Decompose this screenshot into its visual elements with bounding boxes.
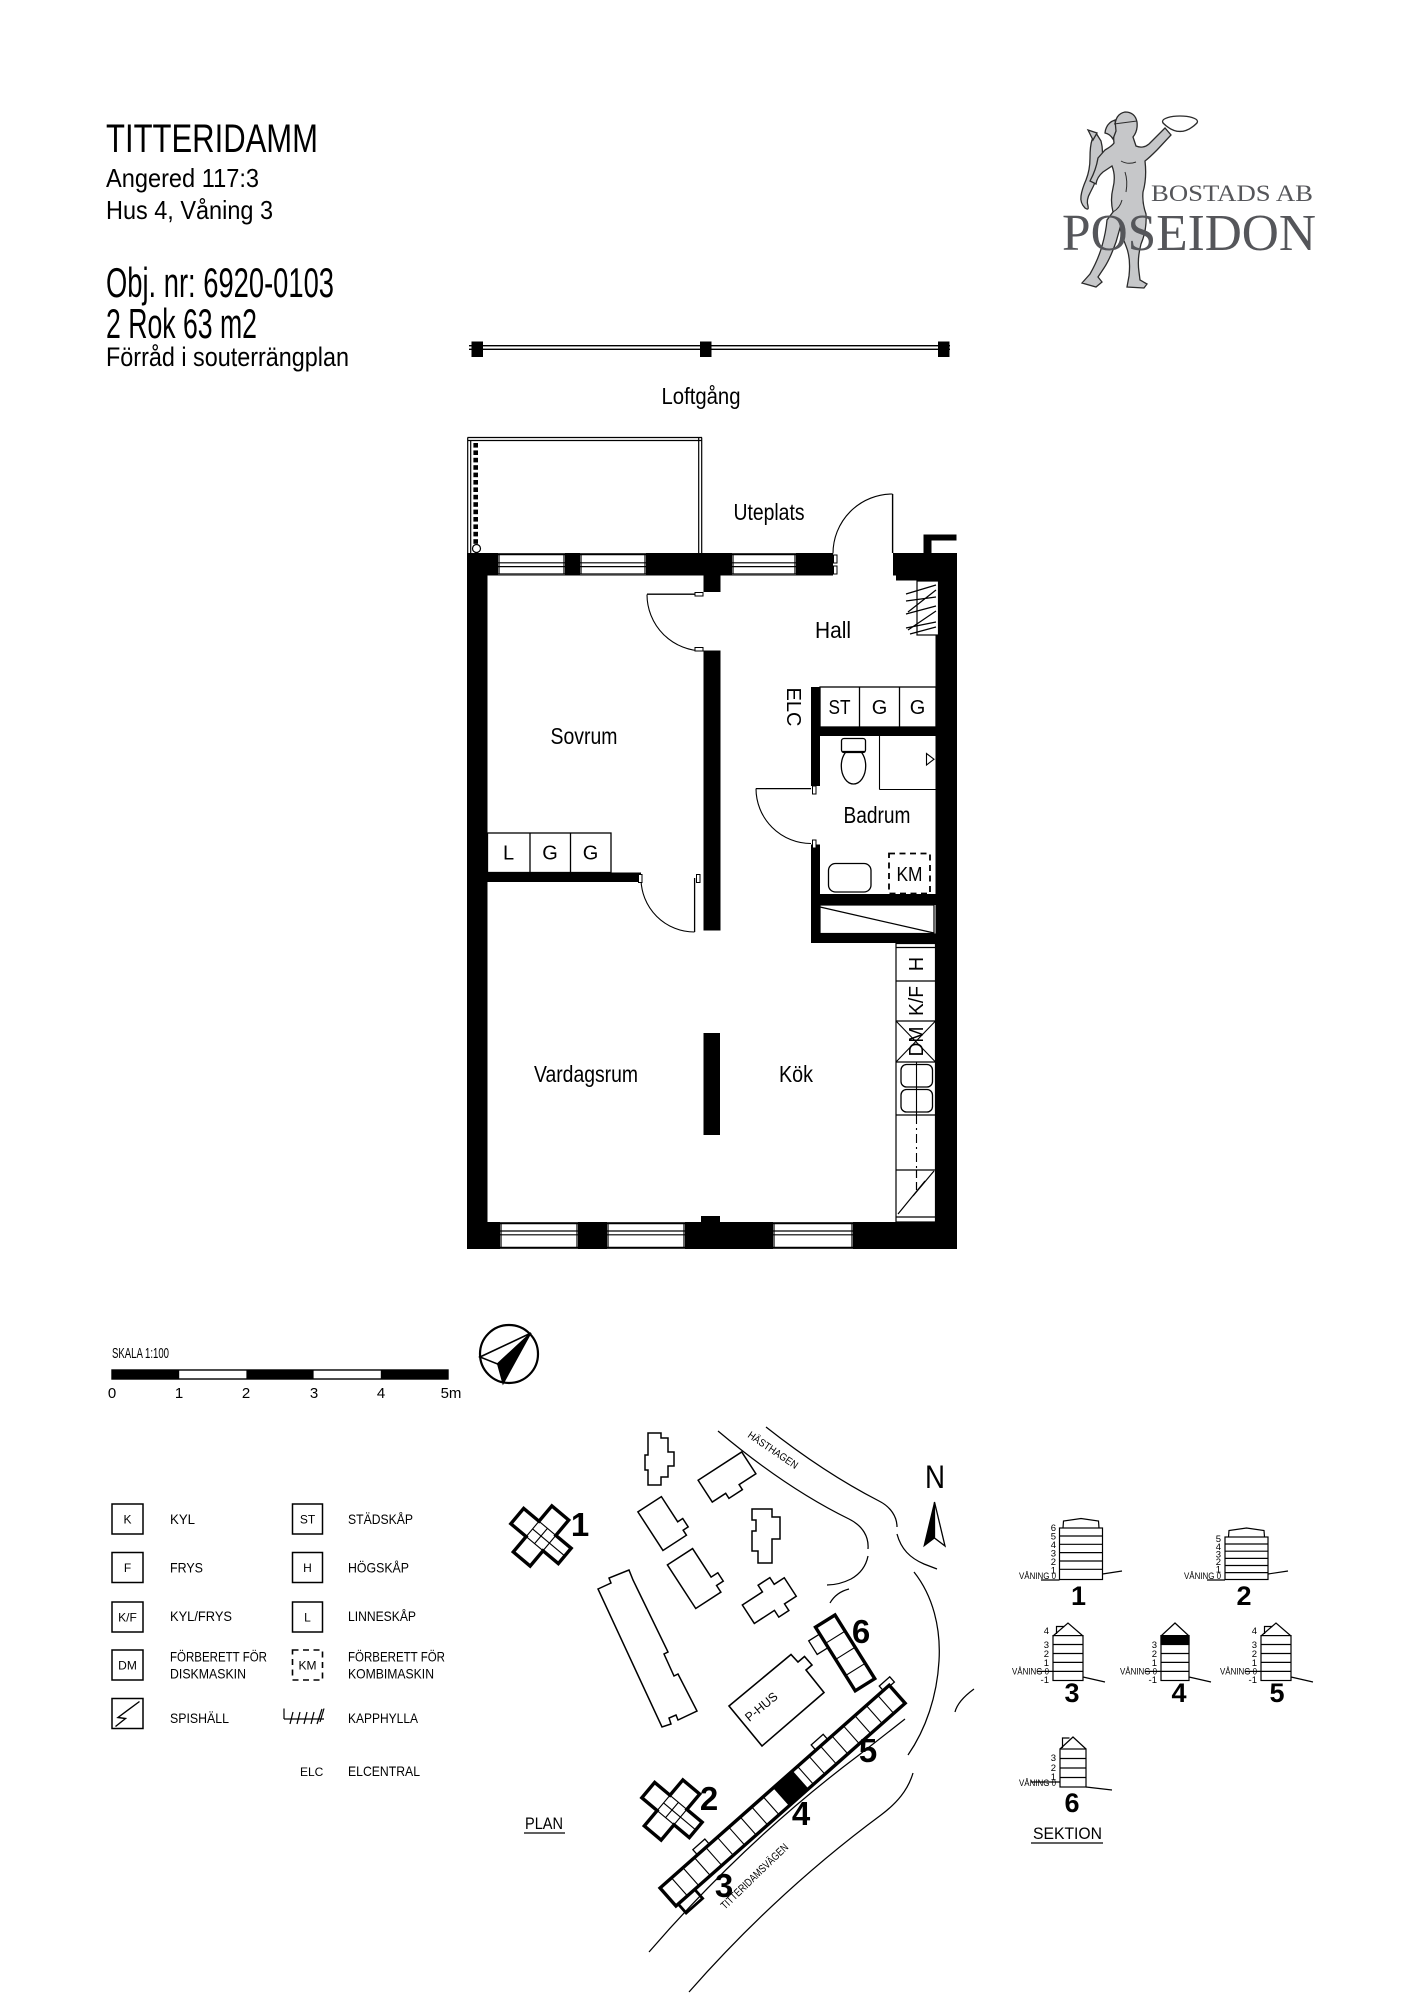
svg-text:0: 0 [108,1385,116,1402]
svg-text:G: G [542,843,558,865]
svg-text:HÖGSKÅP: HÖGSKÅP [348,1559,409,1576]
svg-text:VÅNING 0: VÅNING 0 [1184,1571,1221,1582]
svg-text:G: G [910,697,926,719]
svg-text:KYL/FRYS: KYL/FRYS [170,1608,232,1624]
svg-text:-1: -1 [1149,1675,1157,1686]
svg-text:TITTERIDAMM: TITTERIDAMM [106,117,318,161]
svg-text:H: H [906,957,928,971]
svg-text:Förråd i souterrängplan: Förråd i souterrängplan [106,342,349,372]
svg-text:ST: ST [829,697,851,719]
svg-text:Hus 4, Våning 3: Hus 4, Våning 3 [106,195,273,225]
svg-text:Hall: Hall [815,617,851,643]
svg-text:H: H [303,1561,312,1575]
svg-text:KM: KM [299,1659,317,1673]
svg-text:5: 5 [1269,1678,1284,1708]
svg-text:3: 3 [1064,1678,1079,1708]
svg-text:Obj. nr: 6920-0103: Obj. nr: 6920-0103 [106,259,334,306]
svg-text:K/F: K/F [118,1611,137,1625]
svg-text:FÖRBERETT FÖR: FÖRBERETT FÖR [170,1648,267,1665]
svg-text:4: 4 [377,1385,385,1402]
svg-text:Angered 117:3: Angered 117:3 [106,163,259,193]
svg-text:STÄDSKÅP: STÄDSKÅP [348,1511,413,1527]
svg-text:5m: 5m [441,1385,462,1402]
svg-text:Loftgång: Loftgång [662,383,741,409]
svg-text:N: N [925,1459,945,1495]
svg-text:4: 4 [1252,1626,1257,1637]
svg-text:2: 2 [1236,1581,1251,1611]
svg-text:PLAN: PLAN [525,1814,563,1833]
svg-text:K: K [123,1513,131,1527]
svg-text:K/F: K/F [906,986,928,1016]
svg-text:Uteplats: Uteplats [734,499,805,525]
svg-text:-1: -1 [1249,1675,1257,1686]
svg-text:L: L [304,1611,311,1625]
svg-text:ELC: ELC [782,688,804,727]
svg-text:VÅNING 0: VÅNING 0 [1019,1778,1056,1789]
svg-text:Vardagsrum: Vardagsrum [534,1061,638,1087]
svg-text:DM: DM [906,1027,928,1057]
svg-text:BOSTADS AB: BOSTADS AB [1151,181,1313,206]
svg-text:3: 3 [310,1385,318,1402]
svg-text:KAPPHYLLA: KAPPHYLLA [348,1710,419,1726]
svg-text:ELCENTRAL: ELCENTRAL [348,1763,420,1779]
svg-text:ST: ST [300,1513,316,1527]
svg-text:G: G [872,697,888,719]
svg-text:6: 6 [852,1613,870,1650]
svg-text:KM: KM [897,864,923,886]
svg-text:4: 4 [1044,1626,1049,1637]
svg-text:LINNESKÅP: LINNESKÅP [348,1608,416,1624]
svg-text:FRYS: FRYS [170,1560,203,1576]
svg-text:L: L [503,843,514,865]
svg-text:VÅNING 0: VÅNING 0 [1019,1571,1056,1582]
svg-text:1: 1 [1071,1581,1086,1611]
svg-text:DISKMASKIN: DISKMASKIN [170,1666,246,1682]
svg-text:1: 1 [571,1506,589,1543]
svg-text:KYL: KYL [170,1511,195,1527]
svg-text:5: 5 [859,1732,877,1769]
svg-text:HÄSTHAGEN: HÄSTHAGEN [745,1429,800,1471]
svg-text:G: G [583,843,599,865]
svg-text:Sovrum: Sovrum [551,723,618,749]
svg-text:6: 6 [1064,1788,1079,1818]
svg-text:DM: DM [118,1659,137,1673]
svg-text:SEKTION: SEKTION [1033,1824,1102,1843]
svg-text:F: F [124,1561,131,1575]
svg-text:2: 2 [242,1385,250,1402]
svg-text:-1: -1 [1041,1675,1049,1686]
svg-text:FÖRBERETT FÖR: FÖRBERETT FÖR [348,1648,445,1665]
svg-text:POSEIDON: POSEIDON [1062,205,1316,262]
svg-text:2: 2 [700,1780,718,1817]
svg-text:ELC: ELC [300,1765,324,1779]
svg-text:4: 4 [1171,1678,1186,1708]
svg-text:SPISHÄLL: SPISHÄLL [170,1710,229,1726]
svg-text:KOMBIMASKIN: KOMBIMASKIN [348,1666,434,1682]
svg-text:SKALA 1:100: SKALA 1:100 [112,1345,169,1362]
svg-text:1: 1 [175,1385,183,1402]
svg-text:2 Rok 63 m2: 2 Rok 63 m2 [106,300,257,347]
svg-text:Badrum: Badrum [844,802,911,828]
svg-text:Kök: Kök [779,1061,813,1087]
